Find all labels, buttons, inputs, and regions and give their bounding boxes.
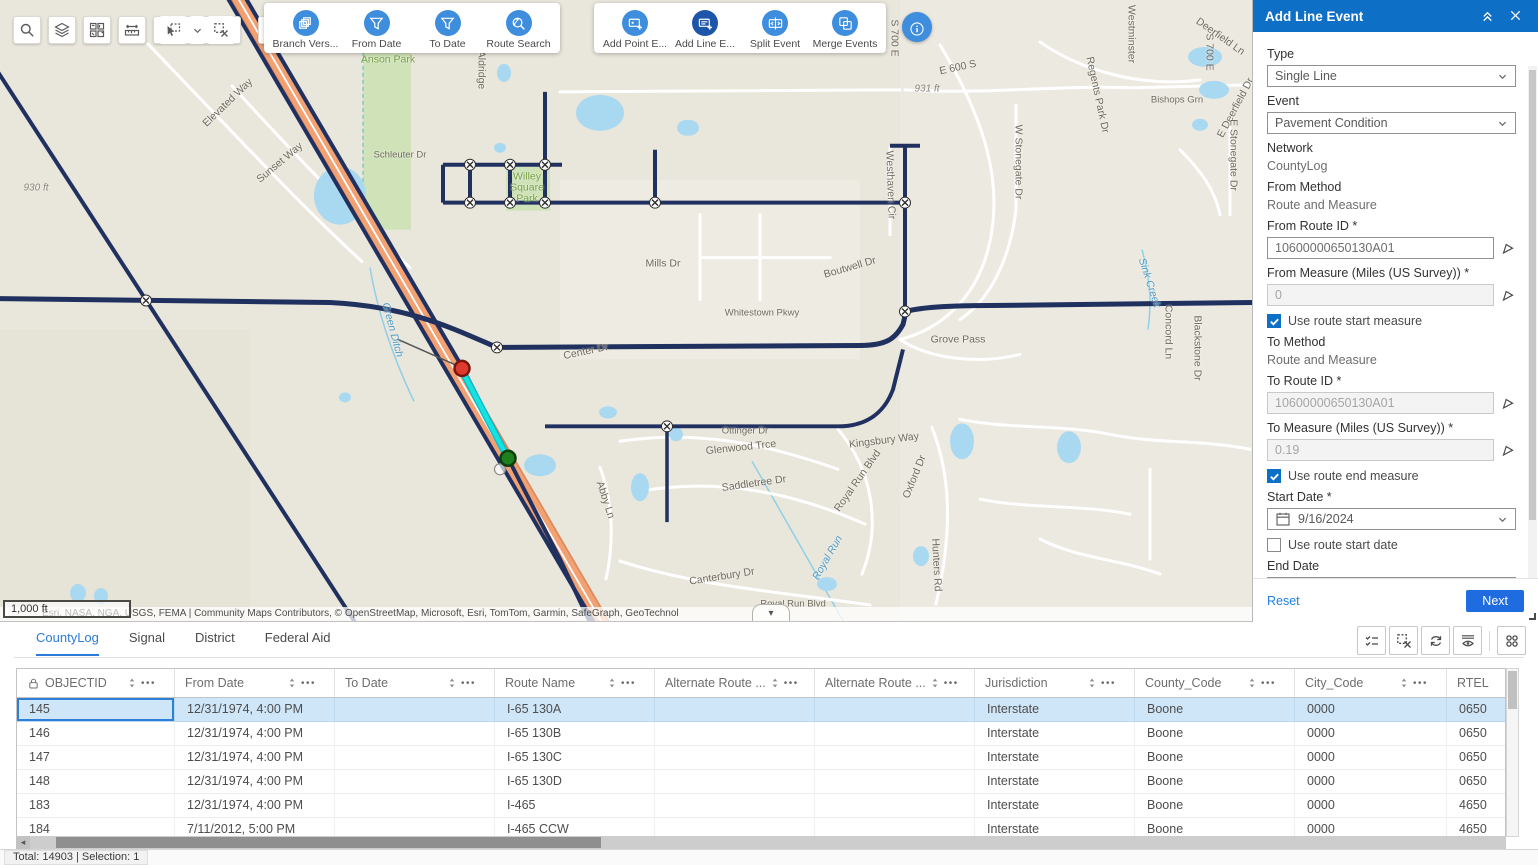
table-cell[interactable]: 183 bbox=[17, 794, 175, 817]
table-row[interactable]: 14712/31/1974, 4:00 PMI-65 130CInterstat… bbox=[17, 746, 1505, 770]
event-to-marker[interactable] bbox=[501, 451, 516, 466]
table-cell[interactable]: Boone bbox=[1135, 794, 1295, 817]
event-label: Event bbox=[1267, 94, 1516, 108]
table-body: 14512/31/1974, 4:00 PMI-65 130AInterstat… bbox=[17, 698, 1505, 837]
table-cell[interactable] bbox=[335, 794, 495, 817]
next-button[interactable]: Next bbox=[1466, 590, 1524, 612]
branch-icon bbox=[293, 10, 319, 36]
table-cell[interactable]: 12/31/1974, 4:00 PM bbox=[175, 770, 335, 793]
select-tool-button[interactable] bbox=[159, 16, 187, 44]
calendar-icon bbox=[1275, 511, 1291, 527]
from-measure-input[interactable] bbox=[1267, 284, 1494, 306]
route-search-button[interactable]: Route Search bbox=[483, 6, 554, 50]
sort-icon[interactable] bbox=[1088, 677, 1096, 689]
table-vertical-scrollbar[interactable] bbox=[1506, 668, 1519, 837]
column-menu-icon[interactable]: ••• bbox=[141, 678, 156, 689]
scroll-left-arrow[interactable]: ◂ bbox=[16, 836, 30, 849]
sort-icon[interactable] bbox=[448, 677, 456, 689]
table-row[interactable]: 18312/31/1974, 4:00 PMI-465InterstateBoo… bbox=[17, 794, 1505, 818]
map-picker-icon bbox=[1500, 240, 1516, 256]
table-cell[interactable] bbox=[815, 722, 975, 745]
table-cell[interactable] bbox=[335, 770, 495, 793]
use-route-end-measure-checkbox[interactable] bbox=[1267, 469, 1281, 483]
table-row[interactable]: 14612/31/1974, 4:00 PMI-65 130BInterstat… bbox=[17, 722, 1505, 746]
panel-collapse-button[interactable] bbox=[1478, 6, 1498, 26]
map-scalebar: 1,000 ft bbox=[3, 600, 131, 618]
to-route-label: To Route ID * bbox=[1267, 374, 1516, 388]
tab-district[interactable]: District bbox=[195, 630, 235, 656]
attribute-table-section: CountyLogSignalDistrictFederal Aid OBJEC… bbox=[0, 622, 1538, 865]
table-cell[interactable]: 0650 bbox=[1447, 746, 1505, 769]
panel-footer: Reset Next bbox=[1253, 578, 1538, 622]
table-cell[interactable] bbox=[815, 794, 975, 817]
table-cell[interactable]: 0000 bbox=[1295, 818, 1447, 837]
to-measure-label: To Measure (Miles (US Survey)) * bbox=[1267, 421, 1516, 435]
from-route-label: From Route ID * bbox=[1267, 219, 1516, 233]
chevron-icon bbox=[192, 25, 203, 36]
table-cell[interactable]: 12/31/1974, 4:00 PM bbox=[175, 794, 335, 817]
double-chevron-up-icon bbox=[1480, 8, 1496, 24]
addpoint-icon bbox=[622, 10, 648, 36]
table-cell[interactable]: 147 bbox=[17, 746, 175, 769]
info-icon bbox=[909, 19, 925, 35]
table-cell[interactable]: Boone bbox=[1135, 746, 1295, 769]
sort-icon[interactable] bbox=[288, 677, 296, 689]
sort-icon[interactable] bbox=[128, 677, 136, 689]
use-route-start-measure-checkbox[interactable] bbox=[1267, 314, 1281, 328]
column-header-county-code[interactable]: County_Code••• bbox=[1135, 669, 1295, 697]
table-header-row: OBJECTID•••From Date•••To Date•••Route N… bbox=[17, 669, 1505, 698]
event-select[interactable]: Pavement Condition bbox=[1267, 112, 1516, 134]
use-route-end-measure-row: Use route end measure bbox=[1267, 469, 1516, 483]
table-cell[interactable]: 4650 bbox=[1447, 818, 1505, 837]
table-cell[interactable]: 0650 bbox=[1447, 722, 1505, 745]
chevron-down-icon bbox=[1497, 71, 1508, 82]
table-row[interactable]: 1847/11/2012, 5:00 PMI-465 CCWInterstate… bbox=[17, 818, 1505, 837]
clear-selection-tool-button[interactable] bbox=[207, 16, 235, 44]
table-cell[interactable]: 4650 bbox=[1447, 794, 1505, 817]
table-cell[interactable] bbox=[335, 722, 495, 745]
addline-icon bbox=[692, 10, 718, 36]
network-value: CountyLog bbox=[1267, 159, 1516, 173]
to-date-button[interactable]: To Date bbox=[412, 6, 483, 50]
merge-events-button[interactable]: Merge Events bbox=[810, 6, 880, 50]
from-date-button[interactable]: From Date bbox=[341, 6, 412, 50]
type-label: Type bbox=[1267, 47, 1516, 61]
tab-federal-aid[interactable]: Federal Aid bbox=[265, 630, 331, 656]
event-tools-card: Add Point E...Add Line E...Split EventMe… bbox=[594, 3, 886, 53]
panel-scrollbar[interactable] bbox=[1528, 66, 1537, 578]
table-status-text: Total: 14903 | Selection: 1 bbox=[4, 850, 148, 865]
map-picker-icon bbox=[1500, 395, 1516, 411]
split-icon bbox=[762, 10, 788, 36]
selectcursor-icon bbox=[165, 22, 181, 38]
panel-close-button[interactable] bbox=[1506, 6, 1526, 26]
table-cell[interactable]: Interstate bbox=[975, 698, 1135, 721]
table-cell[interactable]: I-65 130A bbox=[495, 698, 655, 721]
table-cell[interactable] bbox=[815, 746, 975, 769]
add-line-event-button[interactable]: Add Line E... bbox=[670, 6, 740, 50]
table-cell[interactable] bbox=[815, 698, 975, 721]
toggle-column-visibility-button[interactable] bbox=[1453, 626, 1482, 655]
tab-signal[interactable]: Signal bbox=[129, 630, 165, 656]
table-cell[interactable]: 12/31/1974, 4:00 PM bbox=[175, 746, 335, 769]
split-event-button[interactable]: Split Event bbox=[740, 6, 810, 50]
event-from-marker[interactable] bbox=[455, 361, 470, 376]
table-cell[interactable] bbox=[335, 818, 495, 837]
panel-title: Add Line Event bbox=[1265, 9, 1363, 24]
reset-button[interactable]: Reset bbox=[1267, 594, 1300, 608]
table-horizontal-scrollbar[interactable]: ◂ bbox=[16, 836, 1506, 849]
column-menu-icon[interactable]: ••• bbox=[1413, 678, 1428, 689]
network-label: Network bbox=[1267, 141, 1516, 155]
column-menu-icon[interactable]: ••• bbox=[1101, 678, 1116, 689]
from-measure-label: From Measure (Miles (US Survey)) * bbox=[1267, 266, 1516, 280]
map-toolbar bbox=[13, 16, 286, 44]
to-measure-map-picker-button[interactable] bbox=[1500, 442, 1516, 458]
table-cell[interactable]: 0000 bbox=[1295, 698, 1447, 721]
table-cell[interactable] bbox=[655, 722, 815, 745]
sort-icon[interactable] bbox=[1248, 677, 1256, 689]
column-header-to-date[interactable]: To Date••• bbox=[335, 669, 495, 697]
start-date-field[interactable]: 9/16/2024 bbox=[1267, 508, 1516, 530]
use-route-end-measure-label: Use route end measure bbox=[1288, 469, 1419, 483]
to-method-value: Route and Measure bbox=[1267, 353, 1516, 367]
event-editor-app: Elevated WaySunset WayAldridgeSchleuter … bbox=[0, 0, 1538, 865]
to-route-map-picker-button[interactable] bbox=[1500, 395, 1516, 411]
basemap-icon bbox=[89, 22, 105, 38]
table-cell[interactable]: 0650 bbox=[1447, 770, 1505, 793]
from-route-map-picker-button[interactable] bbox=[1500, 240, 1516, 256]
table-row[interactable]: 14512/31/1974, 4:00 PMI-65 130AInterstat… bbox=[17, 698, 1505, 722]
table-options-button[interactable] bbox=[1497, 626, 1526, 655]
table-cell[interactable]: I-465 bbox=[495, 794, 655, 817]
use-route-start-date-checkbox[interactable] bbox=[1267, 538, 1281, 552]
chevron-down-icon: ▾ bbox=[768, 608, 773, 619]
table-cell[interactable]: 145 bbox=[17, 698, 175, 721]
from-method-label: From Method bbox=[1267, 180, 1516, 194]
chevron-down-icon bbox=[1497, 514, 1508, 525]
column-menu-icon[interactable]: ••• bbox=[301, 678, 316, 689]
column-menu-icon[interactable]: ••• bbox=[461, 678, 476, 689]
column-header-city-code[interactable]: City_Code••• bbox=[1295, 669, 1447, 697]
table-cell[interactable]: Boone bbox=[1135, 770, 1295, 793]
use-route-start-measure-label: Use route start measure bbox=[1288, 314, 1422, 328]
layers-icon bbox=[54, 22, 70, 38]
routesearch-icon bbox=[506, 10, 532, 36]
start-date-label: Start Date * bbox=[1267, 490, 1516, 504]
table-cell[interactable]: Boone bbox=[1135, 722, 1295, 745]
select-dropdown-button[interactable] bbox=[189, 16, 205, 44]
sort-icon[interactable] bbox=[771, 677, 779, 689]
table-cell[interactable]: 148 bbox=[17, 770, 175, 793]
search-tool-button[interactable] bbox=[13, 16, 41, 44]
table-cell[interactable]: 12/31/1974, 4:00 PM bbox=[175, 698, 335, 721]
column-header-route-name[interactable]: Route Name••• bbox=[495, 669, 655, 697]
table-cell[interactable] bbox=[335, 698, 495, 721]
panel-resize-handle[interactable] bbox=[1529, 613, 1536, 620]
from-method-value: Route and Measure bbox=[1267, 198, 1516, 212]
table-cell[interactable]: Interstate bbox=[975, 746, 1135, 769]
basemap-gallery-tool-button[interactable] bbox=[83, 16, 111, 44]
table-cell[interactable]: I-65 130D bbox=[495, 770, 655, 793]
show-selected-records-button[interactable] bbox=[1357, 626, 1386, 655]
table-cell[interactable] bbox=[655, 746, 815, 769]
table-cell[interactable]: 146 bbox=[17, 722, 175, 745]
selection-tool-group bbox=[153, 16, 241, 44]
filter-tools-card: Branch Vers...From DateTo DateRoute Sear… bbox=[264, 3, 560, 53]
table-cell[interactable]: Interstate bbox=[975, 818, 1135, 837]
filter-icon bbox=[435, 10, 461, 36]
from-measure-map-picker-button[interactable] bbox=[1500, 287, 1516, 303]
table-cell[interactable]: 0000 bbox=[1295, 746, 1447, 769]
clearsel-icon bbox=[213, 22, 229, 38]
column-header-jurisdiction[interactable]: Jurisdiction••• bbox=[975, 669, 1135, 697]
chevron-down-icon bbox=[1497, 118, 1508, 129]
search-icon bbox=[19, 22, 35, 38]
measure-tool-button[interactable] bbox=[118, 16, 146, 44]
map-picker-icon bbox=[1500, 442, 1516, 458]
end-date-label: End Date bbox=[1267, 559, 1516, 573]
merge-icon bbox=[832, 10, 858, 36]
layers-tool-button[interactable] bbox=[48, 16, 76, 44]
column-menu-icon[interactable]: ••• bbox=[784, 678, 799, 689]
table-cell[interactable]: Interstate bbox=[975, 722, 1135, 745]
lock-icon bbox=[27, 677, 40, 690]
sort-icon[interactable] bbox=[1400, 677, 1408, 689]
clear-table-selection-button[interactable] bbox=[1389, 626, 1418, 655]
table-cell[interactable]: I-65 130B bbox=[495, 722, 655, 745]
filter-icon bbox=[364, 10, 390, 36]
column-header-alternate-route-[interactable]: Alternate Route ...••• bbox=[815, 669, 975, 697]
horizontal-scroll-thumb[interactable] bbox=[56, 837, 601, 848]
attribution-collapse-button[interactable]: ▾ bbox=[752, 604, 790, 622]
table-cell[interactable] bbox=[655, 770, 815, 793]
table-cell[interactable]: Boone bbox=[1135, 698, 1295, 721]
to-measure-input[interactable] bbox=[1267, 439, 1494, 461]
table-statusbar: Total: 14903 | Selection: 1 bbox=[0, 849, 1538, 865]
table-cell[interactable]: 7/11/2012, 5:00 PM bbox=[175, 818, 335, 837]
table-cell[interactable] bbox=[335, 746, 495, 769]
column-header-rtel[interactable]: RTEL bbox=[1447, 669, 1505, 697]
table-cell[interactable]: 12/31/1974, 4:00 PM bbox=[175, 722, 335, 745]
table-cell[interactable] bbox=[655, 794, 815, 817]
panel-header: Add Line Event bbox=[1253, 0, 1538, 32]
refresh-button[interactable] bbox=[1421, 626, 1450, 655]
table-tabs: CountyLogSignalDistrictFederal Aid bbox=[36, 630, 331, 656]
attribute-table: OBJECTID•••From Date•••To Date•••Route N… bbox=[16, 668, 1506, 838]
table-cell[interactable]: 0000 bbox=[1295, 794, 1447, 817]
table-row[interactable]: 14812/31/1974, 4:00 PMI-65 130DInterstat… bbox=[17, 770, 1505, 794]
use-route-start-measure-row: Use route start measure bbox=[1267, 314, 1516, 328]
table-cell[interactable]: Interstate bbox=[975, 770, 1135, 793]
table-cell[interactable]: 0000 bbox=[1295, 770, 1447, 793]
use-route-start-date-row: Use route start date bbox=[1267, 538, 1516, 552]
table-cell[interactable]: 0000 bbox=[1295, 722, 1447, 745]
info-button[interactable] bbox=[902, 12, 932, 42]
close-icon bbox=[1508, 8, 1524, 24]
tab-countylog[interactable]: CountyLog bbox=[36, 630, 99, 656]
table-cell[interactable] bbox=[815, 770, 975, 793]
anson-park-area bbox=[363, 52, 411, 230]
column-menu-icon[interactable]: ••• bbox=[1261, 678, 1276, 689]
table-toolbar bbox=[1357, 626, 1526, 655]
branch-version-button[interactable]: Branch Vers... bbox=[270, 6, 341, 50]
map-canvas bbox=[0, 0, 1252, 621]
column-header-objectid[interactable]: OBJECTID••• bbox=[17, 669, 175, 697]
table-cell[interactable] bbox=[655, 818, 815, 837]
table-cell[interactable]: 184 bbox=[17, 818, 175, 837]
panel-body: Type Single Line Event Pavement Conditio… bbox=[1253, 32, 1538, 578]
table-tabbar: CountyLogSignalDistrictFederal Aid bbox=[0, 622, 1538, 660]
table-cell[interactable]: I-465 CCW bbox=[495, 818, 655, 837]
column-header-alternate-route-[interactable]: Alternate Route ...••• bbox=[655, 669, 815, 697]
table-cell[interactable] bbox=[655, 698, 815, 721]
map-attribution: Esri, NASA, NGA, USGS, FEMA | Community … bbox=[0, 607, 1252, 621]
to-route-input[interactable] bbox=[1267, 392, 1494, 414]
map[interactable]: Elevated WaySunset WayAldridgeSchleuter … bbox=[0, 0, 1252, 622]
add-line-event-panel: Add Line Event Type Single Line Event Pa… bbox=[1252, 0, 1538, 622]
column-header-from-date[interactable]: From Date••• bbox=[175, 669, 335, 697]
measure-icon bbox=[124, 22, 140, 38]
to-method-label: To Method bbox=[1267, 335, 1516, 349]
sort-icon[interactable] bbox=[608, 677, 616, 689]
sort-icon[interactable] bbox=[931, 677, 939, 689]
column-menu-icon[interactable]: ••• bbox=[621, 678, 636, 689]
table-cell[interactable] bbox=[815, 818, 975, 837]
type-select[interactable]: Single Line bbox=[1267, 65, 1516, 87]
table-cell[interactable]: 0650 bbox=[1447, 698, 1505, 721]
add-point-event-button[interactable]: Add Point E... bbox=[600, 6, 670, 50]
table-cell[interactable]: I-65 130C bbox=[495, 746, 655, 769]
table-cell[interactable]: Boone bbox=[1135, 818, 1295, 837]
column-menu-icon[interactable]: ••• bbox=[944, 678, 959, 689]
from-route-input[interactable] bbox=[1267, 237, 1494, 259]
use-route-start-date-label: Use route start date bbox=[1288, 538, 1398, 552]
table-cell[interactable]: Interstate bbox=[975, 794, 1135, 817]
map-picker-icon bbox=[1500, 287, 1516, 303]
